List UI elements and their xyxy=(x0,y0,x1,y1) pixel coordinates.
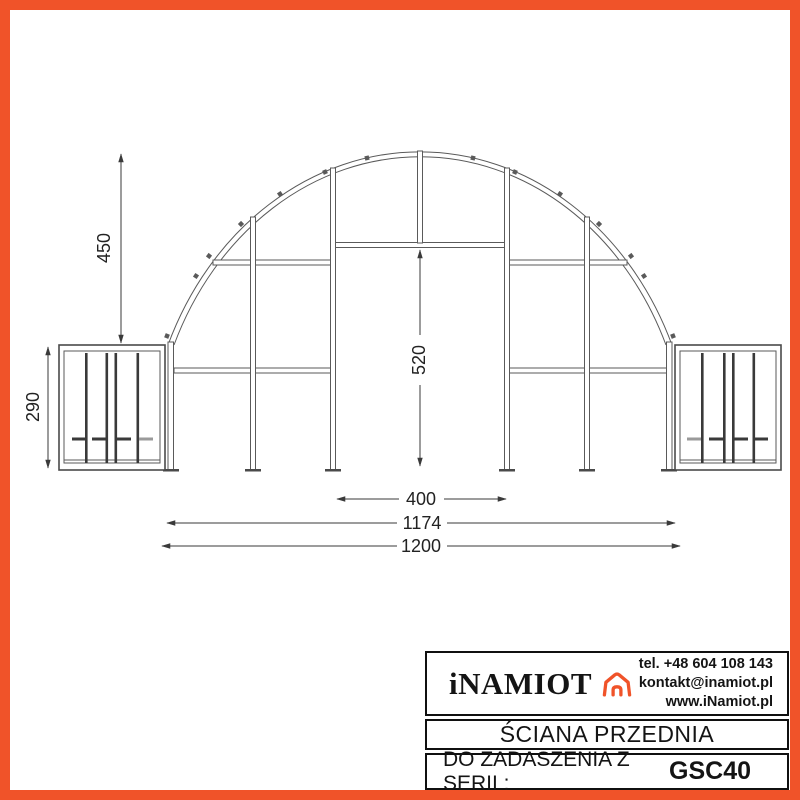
title-block-header-row: iNAMIOT tel. +48 604 108 143 kontakt@ina… xyxy=(425,651,789,716)
brand-name: iNAMIOT xyxy=(449,668,592,699)
dim-1174-label: 1174 xyxy=(403,513,442,533)
door-handle xyxy=(754,438,768,441)
stud-left xyxy=(251,217,256,470)
door-post-right xyxy=(505,168,510,470)
door-handle xyxy=(117,438,131,441)
side-box-left xyxy=(59,345,165,470)
door-post-left xyxy=(331,168,336,470)
purlin-left-upper xyxy=(213,260,333,265)
series-code: GSC40 xyxy=(669,757,751,786)
series-row: DO ZADASZENIA Z SERII : GSC40 xyxy=(425,753,789,790)
foot-plate xyxy=(245,469,261,472)
door-handle xyxy=(72,438,86,441)
door-handle xyxy=(139,438,153,441)
email-address: kontakt@inamiot.pl xyxy=(639,674,773,693)
drawing-title-row: ŚCIANA PRZEDNIA xyxy=(425,719,789,750)
dim-1200-label: 1200 xyxy=(401,536,441,556)
stud-right xyxy=(585,217,590,470)
dim-520-label: 520 xyxy=(409,345,429,375)
arch-leg-right xyxy=(667,342,673,470)
title-block: iNAMIOT tel. +48 604 108 143 kontakt@ina… xyxy=(425,651,789,790)
foot-plate xyxy=(499,469,515,472)
foot-plate xyxy=(325,469,341,472)
dim-400-label: 400 xyxy=(406,489,436,509)
dim-290-label: 290 xyxy=(23,392,43,422)
dim-450-label: 450 xyxy=(94,233,114,263)
website-url: www.iNamiot.pl xyxy=(639,693,773,712)
series-label: DO ZADASZENIA Z SERII : xyxy=(443,748,669,796)
foot-plate xyxy=(579,469,595,472)
drawing-title: ŚCIANA PRZEDNIA xyxy=(500,721,715,748)
brand-logo: iNAMIOT xyxy=(449,668,635,699)
phone-number: tel. +48 604 108 143 xyxy=(639,655,773,674)
door-handle xyxy=(709,438,723,441)
side-box-right xyxy=(675,345,781,470)
door-handle xyxy=(92,438,106,441)
purlin-right-upper xyxy=(507,260,627,265)
door-handle xyxy=(687,438,701,441)
contact-info: tel. +48 604 108 143 kontakt@inamiot.pl … xyxy=(639,655,773,712)
stud-center-top xyxy=(418,151,423,243)
door-handle xyxy=(734,438,748,441)
tent-house-icon xyxy=(599,670,635,697)
arch-leg-left xyxy=(168,342,174,470)
foot-plates xyxy=(163,469,677,472)
